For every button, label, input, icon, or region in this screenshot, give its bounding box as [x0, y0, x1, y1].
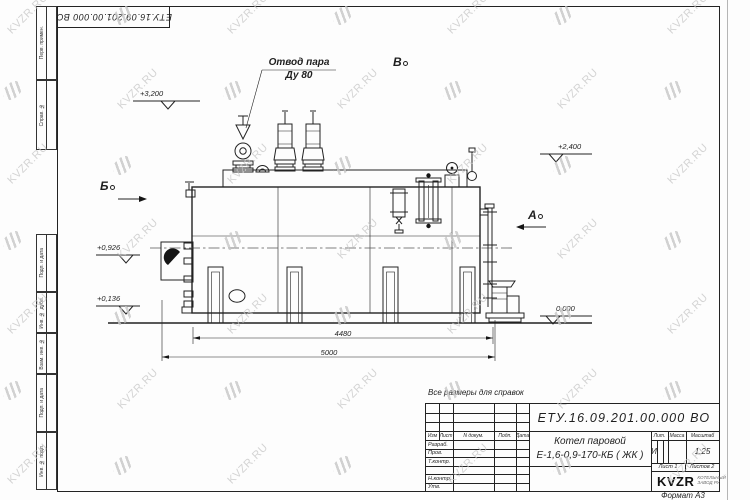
- safety-valve-icon: [302, 111, 324, 171]
- elevation-2400: +2,400: [558, 142, 581, 151]
- support-leg: [208, 267, 223, 323]
- manhole: [229, 290, 245, 302]
- steam-outlet-size: Ду 80: [262, 70, 336, 81]
- safety-valve-icon: [274, 111, 296, 171]
- panel-seams: [192, 187, 480, 313]
- whistle-fitting-icon: [468, 148, 477, 181]
- col-list: Лист: [439, 431, 453, 440]
- water-level-gauge-icon: [416, 173, 441, 228]
- title-designation: ЕТУ.16.09.201.00.000 ВО: [529, 404, 719, 431]
- support-leg: [287, 267, 302, 323]
- header-mass: Масса: [668, 431, 686, 440]
- dome-fitting: [256, 166, 269, 172]
- col-podp: Подп.: [494, 431, 516, 440]
- sheet-number: Лист 1: [651, 463, 685, 471]
- header-lit: Лит.: [651, 431, 668, 440]
- row-nkontr: Н.контр.: [426, 474, 455, 483]
- title-block: ЕТУ.16.09.201.00.000 ВО Изм Лист N докум…: [425, 403, 720, 492]
- burner-opening: [164, 248, 180, 265]
- sight-glass-icon: [390, 189, 408, 233]
- steam-outlet-label: Отвод пара: [262, 57, 336, 68]
- dimension-5000: 5000: [309, 348, 349, 357]
- view-arrow-b: [118, 196, 147, 202]
- elevation-0000: 0,000: [556, 304, 575, 313]
- row-tkontr: Т.контр.: [426, 457, 455, 466]
- scale-value: 1:25: [686, 440, 719, 463]
- feed-pipe: [480, 204, 497, 307]
- steam-outlet-valve-icon: [233, 116, 253, 172]
- side-nozzles: [182, 182, 195, 313]
- kvzr-logo-text: KVZR: [657, 474, 694, 489]
- col-izm: Изм: [426, 431, 439, 440]
- support-leg: [383, 267, 398, 323]
- row-utv: Утв.: [426, 483, 455, 491]
- kvzr-logo-subtext: КОТЕЛЬНЫЙ ЗАВОД РУ: [697, 476, 725, 486]
- kvzr-logo: KVZR КОТЕЛЬНЫЙ ЗАВОД РУ: [654, 473, 717, 489]
- view-label-b: Б: [100, 179, 115, 193]
- view-arrow-a: [516, 224, 546, 230]
- view-scale-mark: [403, 61, 408, 66]
- view-scale-mark: [538, 214, 543, 219]
- lit-value: И: [651, 440, 657, 463]
- elevation-0926: +0,926: [97, 243, 120, 252]
- row-prov: Пров.: [426, 449, 455, 457]
- col-data: Дата: [516, 431, 529, 440]
- format-label: Формат А3: [648, 491, 718, 500]
- view-label-a: А: [528, 208, 543, 222]
- elevation-marks: [96, 101, 592, 324]
- row-razrab: Разраб.: [426, 440, 455, 449]
- gauge-valve-icon: [445, 163, 459, 188]
- view-scale-mark: [110, 185, 115, 190]
- product-model: Е-1,6-0,9-170-КБ ( ЖК ): [529, 447, 651, 463]
- sheet-total: Листов 2: [685, 463, 719, 471]
- feed-pump-icon: [486, 281, 524, 322]
- elevation-3200: +3,200: [140, 89, 163, 98]
- col-doc: N докум.: [453, 431, 494, 440]
- elevation-0136: +0,136: [97, 294, 120, 303]
- header-scale: Масштаб: [686, 431, 719, 440]
- view-label-v: В: [393, 55, 408, 69]
- drawing-sheet: { "watermark": { "text": "KVZR.RU", "col…: [0, 0, 750, 500]
- support-leg: [460, 267, 475, 323]
- boiler-body: [192, 187, 480, 313]
- reference-note: Все размеры для справок: [428, 388, 524, 397]
- dimension-4480: 4480: [323, 329, 363, 338]
